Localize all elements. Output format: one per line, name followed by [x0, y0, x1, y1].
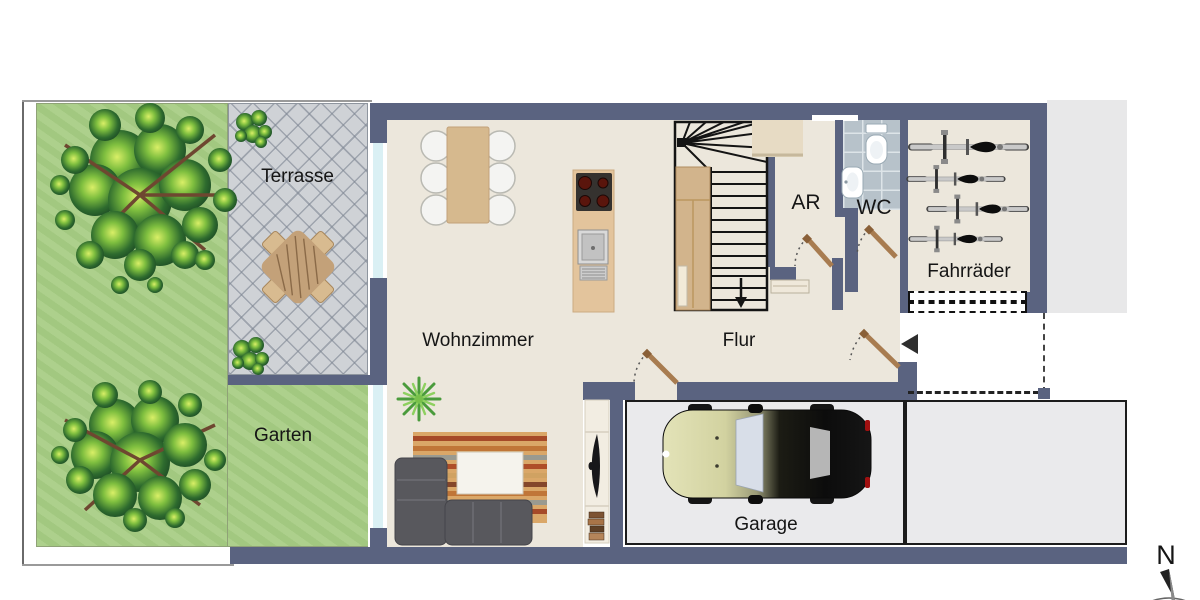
tree-icon: [50, 103, 237, 294]
room-label-fahrraeder: Fahrräder: [919, 261, 1019, 283]
bicycle-icon: [926, 195, 1029, 224]
toilet-icon: [866, 124, 887, 164]
room-label-flur: Flur: [715, 330, 763, 352]
room-label-garten: Garten: [250, 425, 316, 447]
bicycle-icon: [906, 165, 1005, 193]
tree-icon: [51, 380, 226, 532]
sink-icon: [842, 167, 863, 198]
dining-set-icon: [421, 127, 515, 225]
coffee-table-icon: [457, 452, 523, 494]
shelf-icon: [752, 120, 803, 157]
compass-north-label: N: [1148, 540, 1184, 571]
door-wc-icon: [857, 225, 896, 257]
radiator-icon: [771, 280, 809, 293]
bicycle-icon: [908, 226, 1002, 253]
books-icon: [588, 512, 604, 540]
plant-icon: [398, 378, 440, 420]
kitchen-unit-icon: [573, 170, 614, 312]
entrance-arrow-icon: [901, 334, 918, 354]
furniture-overlay: [0, 0, 1200, 600]
room-label-terrasse: Terrasse: [250, 166, 345, 188]
tv-sideboard-icon: [585, 400, 609, 543]
wardrobe-icon: [676, 167, 710, 310]
door-entrance-icon: [850, 329, 899, 367]
room-label-wc: WC: [854, 196, 894, 220]
room-label-ar: AR: [788, 191, 824, 215]
room-label-wohnzimmer: Wohnzimmer: [413, 330, 543, 352]
room-label-garage: Garage: [731, 514, 801, 536]
terrace-table-icon: [239, 208, 358, 327]
floor-plan: Terrasse Garten Wohnzimmer Flur AR WC Fa…: [0, 0, 1200, 600]
bicycle-icon: [908, 130, 1029, 164]
bush-icon: [235, 110, 272, 148]
door-livingroom-icon: [634, 349, 677, 383]
bush-icon: [232, 337, 269, 375]
door-ar-icon: [795, 234, 832, 266]
car-icon: [663, 404, 872, 504]
compass-icon: [1119, 569, 1200, 600]
